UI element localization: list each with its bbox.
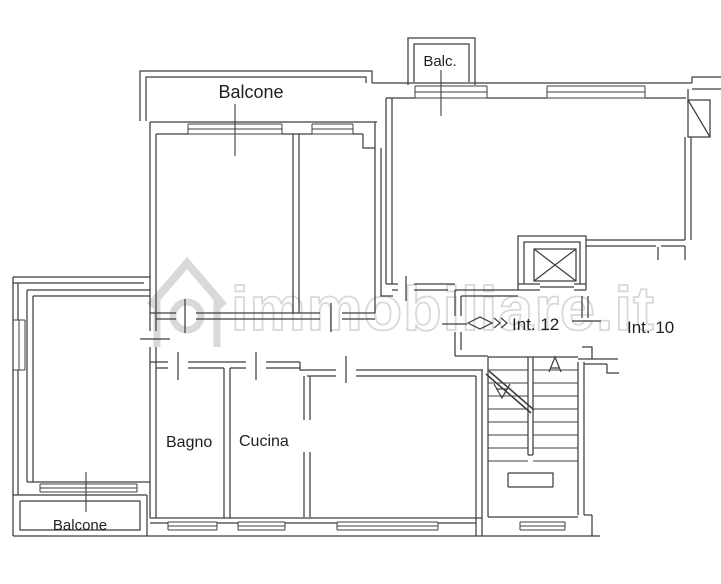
label-bathroom: Bagno: [166, 434, 212, 451]
staircase: [486, 357, 619, 536]
floor-plan-image: immobiliare.it: [0, 0, 721, 584]
label-balcony-top: Balcone: [218, 82, 283, 102]
label-balcony-small: Balc.: [423, 53, 456, 70]
floor-plan-svg: immobiliare.it: [0, 0, 721, 584]
label-unit-10: Int. 10: [627, 318, 674, 337]
watermark: immobiliare.it: [150, 263, 655, 347]
watermark-text: immobiliare.it: [231, 275, 655, 344]
label-unit-12: Int. 12: [512, 315, 559, 334]
label-kitchen: Cucina: [239, 433, 289, 450]
label-balcony-bottom: Balcone: [53, 517, 107, 534]
staircase-walls: [488, 357, 619, 536]
stair-break-line: [486, 371, 534, 413]
house-logo-icon: [150, 263, 224, 347]
